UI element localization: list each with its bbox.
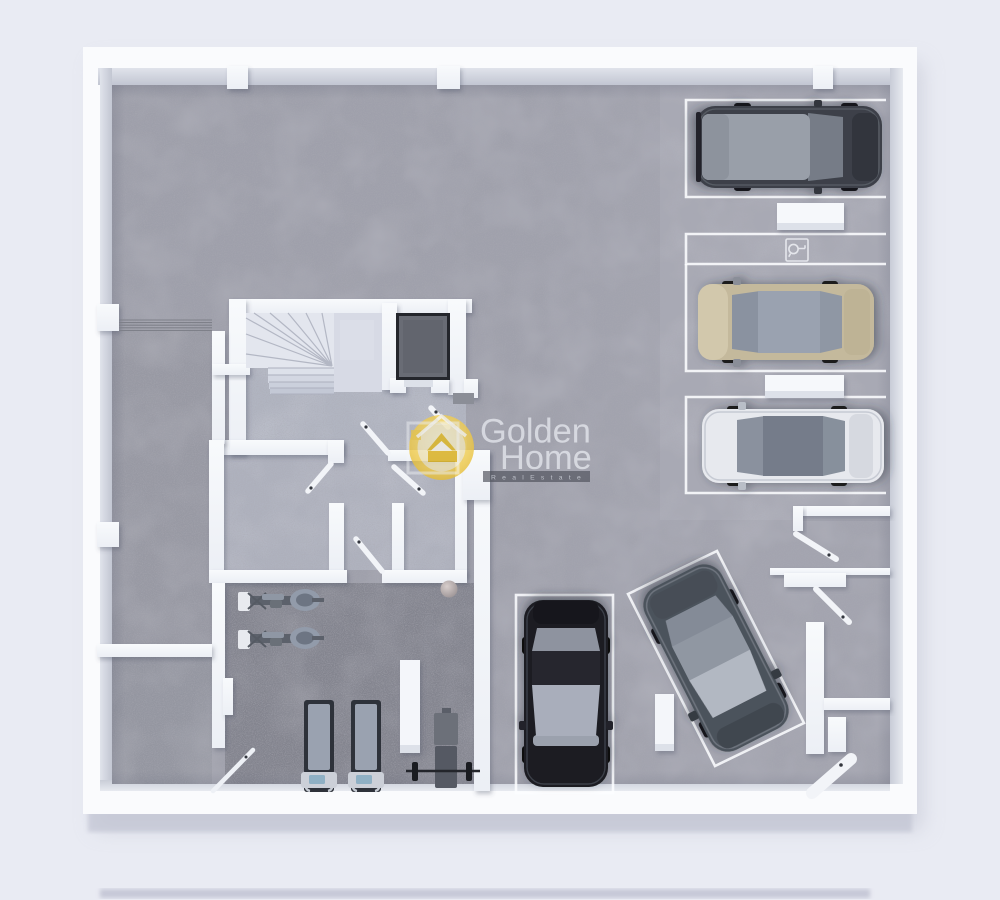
svg-text:R e a l E s t a t e: R e a l E s t a t e (491, 475, 583, 482)
